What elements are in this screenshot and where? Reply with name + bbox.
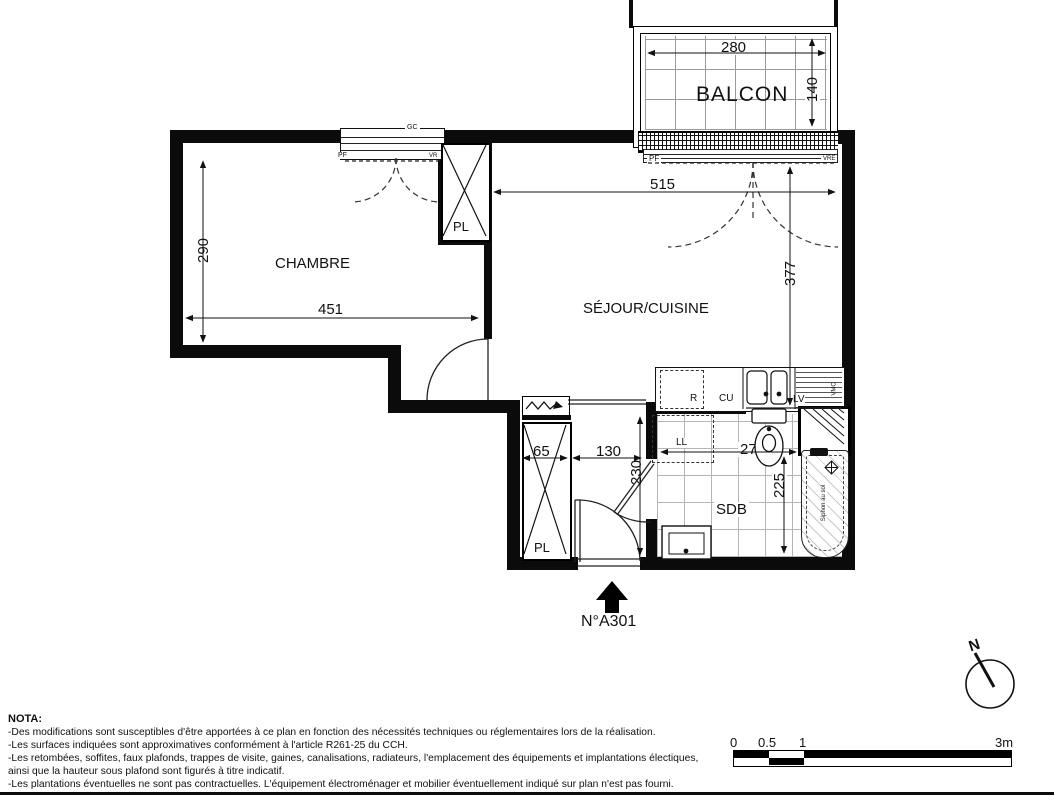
dim-chambre-height: 290 — [196, 236, 211, 265]
wall — [834, 0, 838, 28]
north-letter: N — [967, 637, 982, 655]
window-label-vre-sejour: VRE — [821, 156, 837, 162]
scale-tick-1: 1 — [799, 736, 806, 749]
dim-sejour-depth: 377 — [783, 259, 798, 288]
entrance-door — [575, 500, 640, 562]
wall — [388, 400, 520, 413]
balcony-door-swing — [668, 162, 838, 247]
scale-tick-05: 0.5 — [758, 736, 776, 749]
closet-pl1-label: PL — [453, 220, 469, 233]
electric-box-bar — [522, 415, 571, 420]
bottom-rule — [0, 792, 1054, 795]
room-label-sdb: SDB — [714, 502, 749, 517]
scale-tick-0: 0 — [730, 736, 737, 749]
fridge-label: R — [690, 394, 697, 404]
wall — [507, 400, 520, 570]
unit-number-label: N°A301 — [581, 614, 636, 630]
dim-balcon-depth: 140 — [805, 75, 820, 104]
siphon-label: Siphon au sol — [821, 483, 827, 523]
nota-line: -Les retombées, soffites, faux plafonds,… — [8, 754, 698, 764]
wall — [170, 130, 352, 143]
window-label-gc: GC — [405, 124, 420, 131]
nota-line: -Des modifications sont susceptibles d'ê… — [8, 728, 656, 738]
dim-chambre-width: 451 — [316, 302, 345, 317]
room-label-balcon: BALCON — [696, 84, 788, 105]
chambre-door — [427, 339, 488, 400]
scale-bar — [733, 750, 1012, 767]
wall — [440, 130, 636, 143]
wall — [646, 519, 657, 567]
dim-sejour-width: 515 — [648, 177, 677, 192]
nota-title: NOTA: — [8, 714, 42, 725]
closet-pl2-label: PL — [534, 541, 550, 554]
fridge-slot — [660, 370, 704, 409]
room-label-sejour: SÉJOUR/CUISINE — [583, 301, 709, 316]
vmc-label: VMC — [832, 382, 838, 395]
wall — [640, 557, 855, 570]
duct-box — [798, 406, 851, 456]
dim-sdb-width: 276 — [738, 442, 767, 457]
wall — [170, 345, 401, 358]
dim-hall-width: 130 — [594, 444, 623, 459]
washing-machine-label: LL — [676, 438, 687, 448]
window-label-pf-sejour: PF — [647, 155, 661, 163]
north-compass-icon — [966, 653, 1014, 708]
dim-hall-depth: 230 — [629, 458, 644, 487]
cooktop-label: CU — [719, 394, 733, 404]
window-label-pf-chambre: PF — [336, 152, 349, 159]
entry-arrow-icon — [596, 581, 628, 613]
dim-pl-width: 65 — [531, 444, 552, 459]
room-label-chambre: CHAMBRE — [275, 256, 350, 271]
wall — [629, 0, 633, 28]
wall — [170, 143, 183, 356]
dishwasher-label: LV — [793, 395, 805, 405]
scale-tick-3m: 3m — [995, 736, 1013, 749]
window-label-vr-chambre: VR — [427, 153, 439, 159]
sejour-window-sill — [643, 149, 838, 163]
floor-plan: BALCON GC PF VR PF VRE PL PL R CU LV VMC… — [0, 0, 1054, 800]
nota-line: -Les plantations éventuelles ne sont pas… — [8, 780, 674, 790]
chambre-window-swing — [352, 158, 440, 202]
nota-line: ainsi que la hauteur sous plafond sont f… — [8, 767, 284, 777]
dim-sdb-depth: 225 — [772, 471, 787, 500]
dim-balcon-width: 280 — [719, 40, 748, 55]
nota-line: -Les surfaces indiquées sont approximati… — [8, 741, 408, 751]
